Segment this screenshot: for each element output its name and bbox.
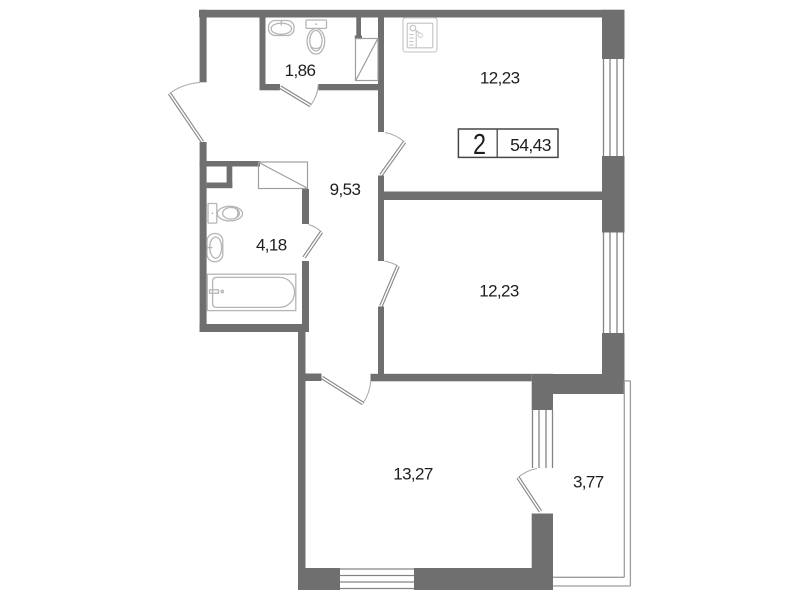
svg-text:2: 2 [473, 129, 486, 161]
svg-text:9,53: 9,53 [330, 180, 361, 199]
svg-text:1,86: 1,86 [285, 61, 316, 80]
svg-text:13,27: 13,27 [393, 465, 433, 484]
svg-text:12,23: 12,23 [480, 68, 520, 87]
svg-text:3,77: 3,77 [573, 473, 604, 492]
svg-text:12,23: 12,23 [479, 282, 519, 301]
svg-text:4,18: 4,18 [256, 236, 287, 255]
svg-text:54,43: 54,43 [510, 135, 551, 155]
